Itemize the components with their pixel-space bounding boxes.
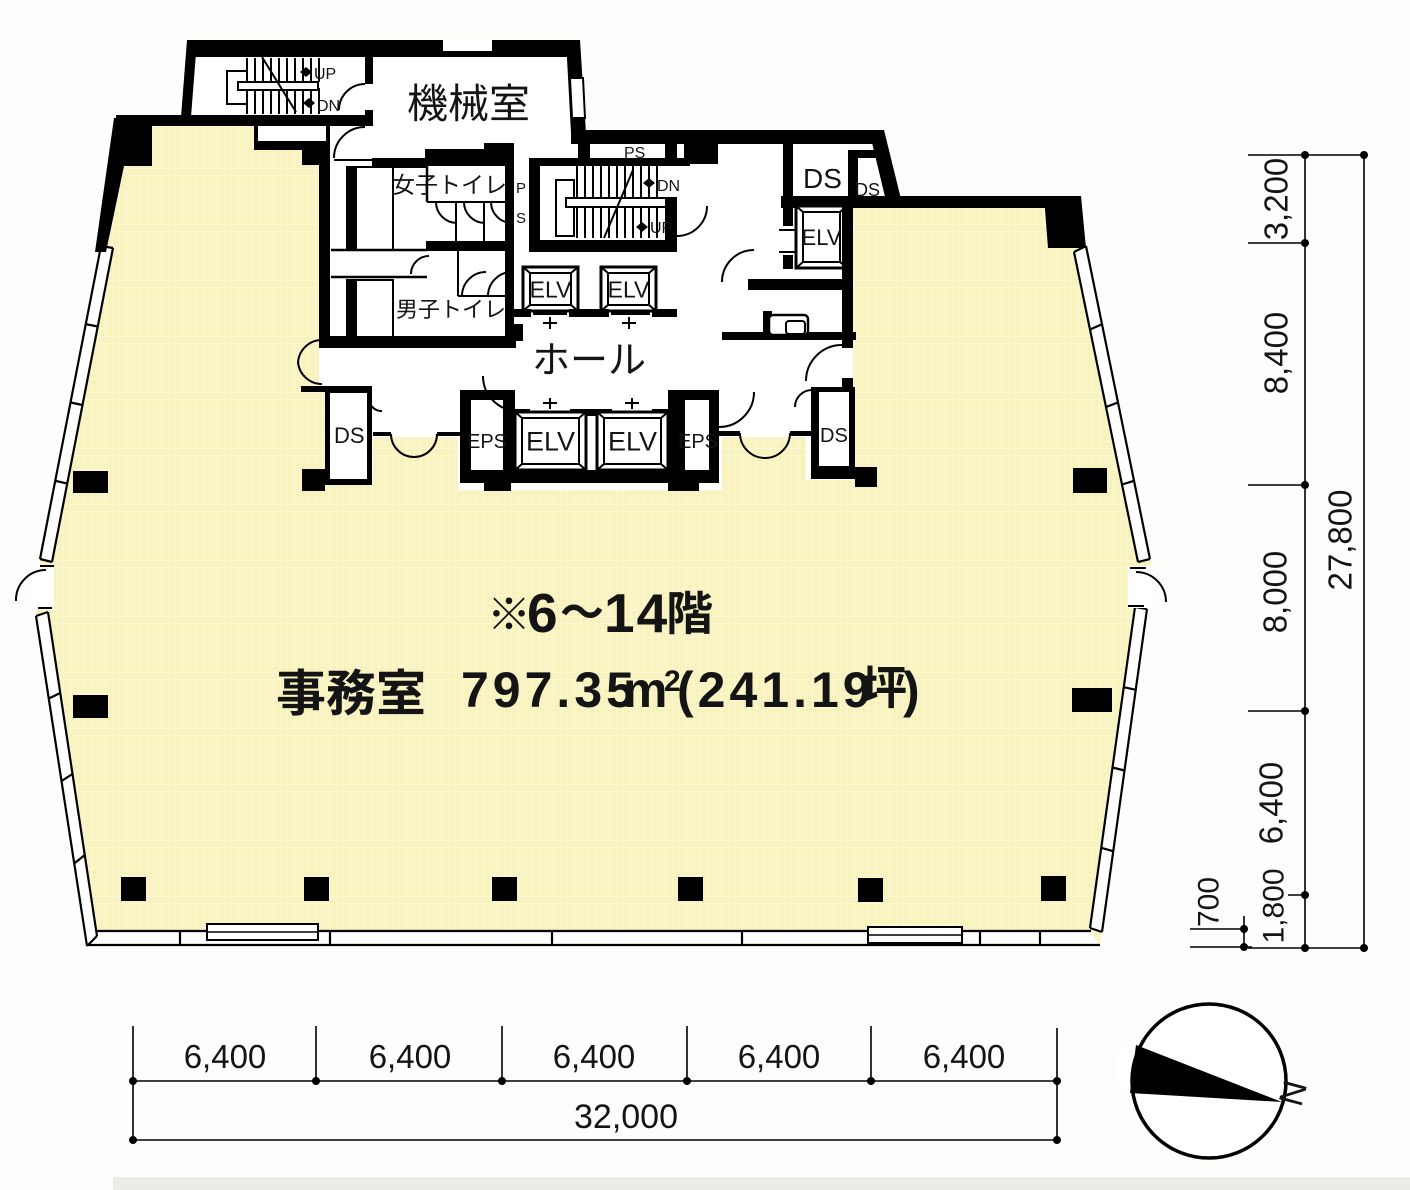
svg-text:8,000: 8,000 bbox=[1257, 551, 1294, 634]
svg-text:ELV: ELV bbox=[608, 276, 650, 302]
svg-text:ELV: ELV bbox=[526, 427, 575, 457]
svg-text:700: 700 bbox=[1193, 877, 1226, 927]
svg-text:): ) bbox=[903, 662, 920, 718]
svg-text:6,400: 6,400 bbox=[553, 1038, 636, 1075]
svg-text:8,400: 8,400 bbox=[1258, 312, 1295, 395]
svg-text:32,000: 32,000 bbox=[574, 1098, 678, 1136]
svg-text:DS: DS bbox=[855, 180, 880, 200]
svg-text:ELV: ELV bbox=[530, 276, 572, 302]
svg-text:UP: UP bbox=[650, 220, 672, 237]
svg-text:6: 6 bbox=[527, 582, 558, 644]
svg-text:14: 14 bbox=[604, 582, 669, 644]
svg-text:S: S bbox=[516, 210, 526, 227]
svg-text:UP: UP bbox=[314, 66, 336, 83]
svg-text:6,400: 6,400 bbox=[923, 1038, 1006, 1075]
svg-text:ELV: ELV bbox=[802, 225, 842, 250]
svg-text:(241.19: (241.19 bbox=[677, 662, 875, 718]
svg-text:ELV: ELV bbox=[608, 427, 657, 457]
svg-text:m: m bbox=[623, 662, 667, 718]
svg-text:DN: DN bbox=[317, 98, 340, 115]
svg-text:6,400: 6,400 bbox=[738, 1038, 821, 1075]
svg-text:P: P bbox=[516, 180, 526, 197]
svg-text:27,800: 27,800 bbox=[1322, 490, 1359, 591]
svg-text:6,400: 6,400 bbox=[1253, 762, 1290, 845]
svg-text:DS: DS bbox=[334, 423, 365, 448]
svg-text:DN: DN bbox=[657, 178, 680, 195]
svg-text:6,400: 6,400 bbox=[184, 1038, 267, 1075]
svg-text:EPS: EPS bbox=[678, 431, 718, 453]
svg-text:3,200: 3,200 bbox=[1258, 158, 1295, 241]
svg-text:DS: DS bbox=[820, 425, 848, 447]
svg-text:1,800: 1,800 bbox=[1258, 868, 1291, 943]
svg-text:6,400: 6,400 bbox=[369, 1038, 452, 1075]
svg-text:797.35: 797.35 bbox=[461, 662, 638, 718]
svg-text:DS: DS bbox=[803, 163, 842, 194]
svg-text:EPS: EPS bbox=[467, 431, 507, 453]
